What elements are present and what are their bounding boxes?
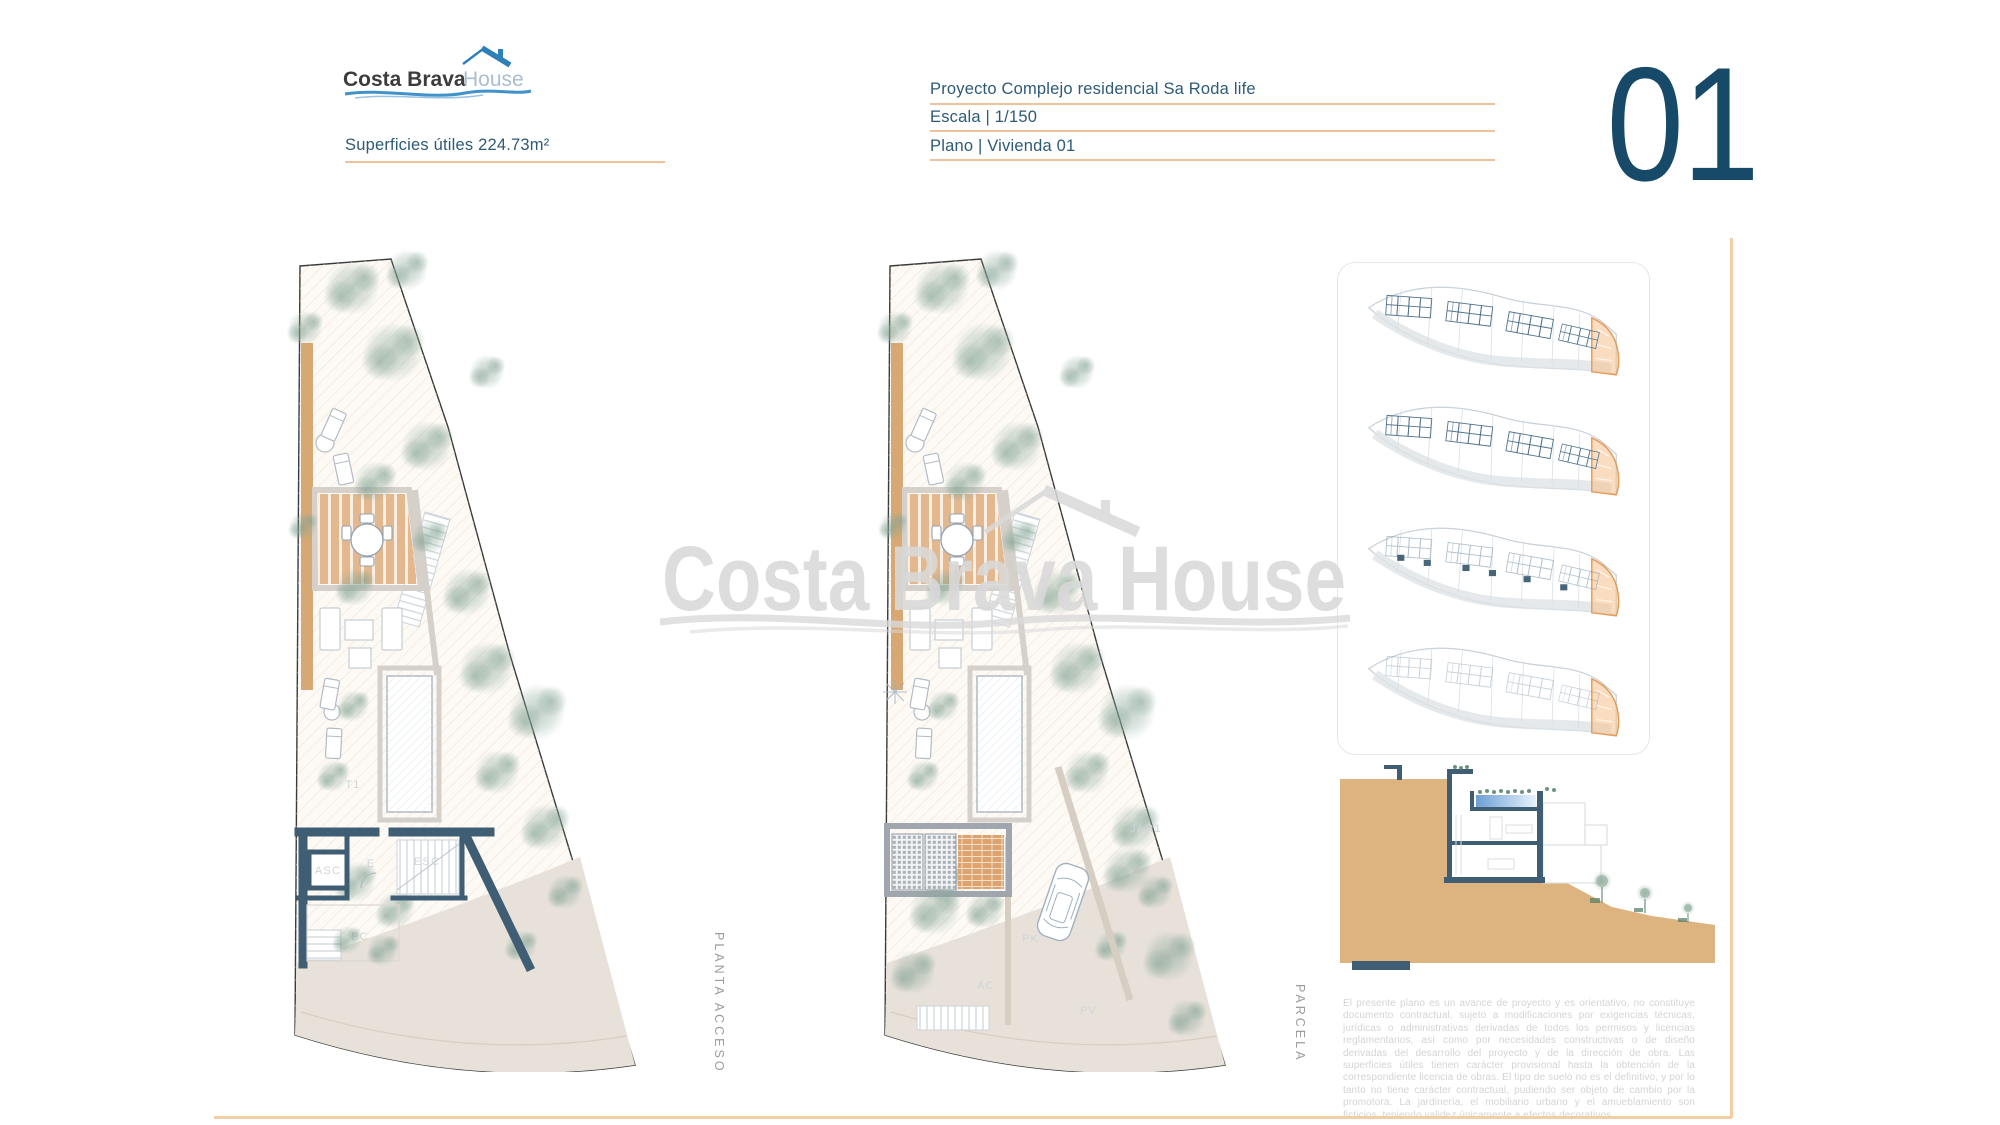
area-label-ac: AC [977,980,995,992]
logo: Costa Brava House [343,34,538,102]
section-pool [1476,795,1536,807]
site-plan-level-3 [1358,514,1630,624]
superficies-label: Superficies útiles 224.73m² [345,136,549,155]
disclaimer-text: El presente plano es un avance de proyec… [1343,998,1695,1122]
plano-underline [930,159,1495,161]
room-label-e: E [367,858,376,870]
logo-brand-dark: Costa Brava [343,68,466,91]
wave-swoosh-icon [345,91,531,98]
logo-brand-light: House [463,68,524,91]
room-label-esc: ESC [414,856,440,868]
caption-planta-acceso: PLANTA ACCESO [712,932,726,1074]
site-plan-level-4 [1358,634,1630,744]
site-plan-level-2 [1358,393,1630,503]
brick-deck [958,835,1004,889]
palm-symbol [883,680,907,704]
area-label-jar1: JAR1 [1130,823,1162,835]
room-label-asc: ASC [315,865,341,877]
project-underline [930,103,1495,105]
area-label-pk: PK [1022,933,1039,945]
sheet-number: 01 [1603,44,1758,206]
site-plan-level-1 [1358,273,1630,383]
scale-underline [930,130,1495,132]
caption-parcela: PARCELA [1293,984,1307,1062]
site-plan-card [1337,262,1650,755]
floor-plan-planta-acceso: ASC E ESC PC T1 [287,250,645,1072]
area-label-pv: PV [1080,1005,1097,1017]
room-label-t1: T1 [345,779,360,791]
foundation-plinth [1352,961,1410,970]
frame-line-horizontal [214,1116,1732,1119]
plano-label: Plano | Vivienda 01 [930,137,1075,156]
floor-plan-parcela: JAR1 PK AC PV [877,250,1235,1072]
project-title: Proyecto Complejo residencial Sa Roda li… [930,80,1256,99]
plan-sheet: Costa Brava House Superficies útiles 224… [0,0,2000,1125]
neighbor-outline [1543,803,1607,883]
scale-label: Escala | 1/150 [930,108,1037,127]
frame-line-vertical [1730,238,1733,1118]
superficies-underline [345,161,665,163]
house-roof-icon [463,48,510,65]
section-drawing [1340,765,1715,980]
